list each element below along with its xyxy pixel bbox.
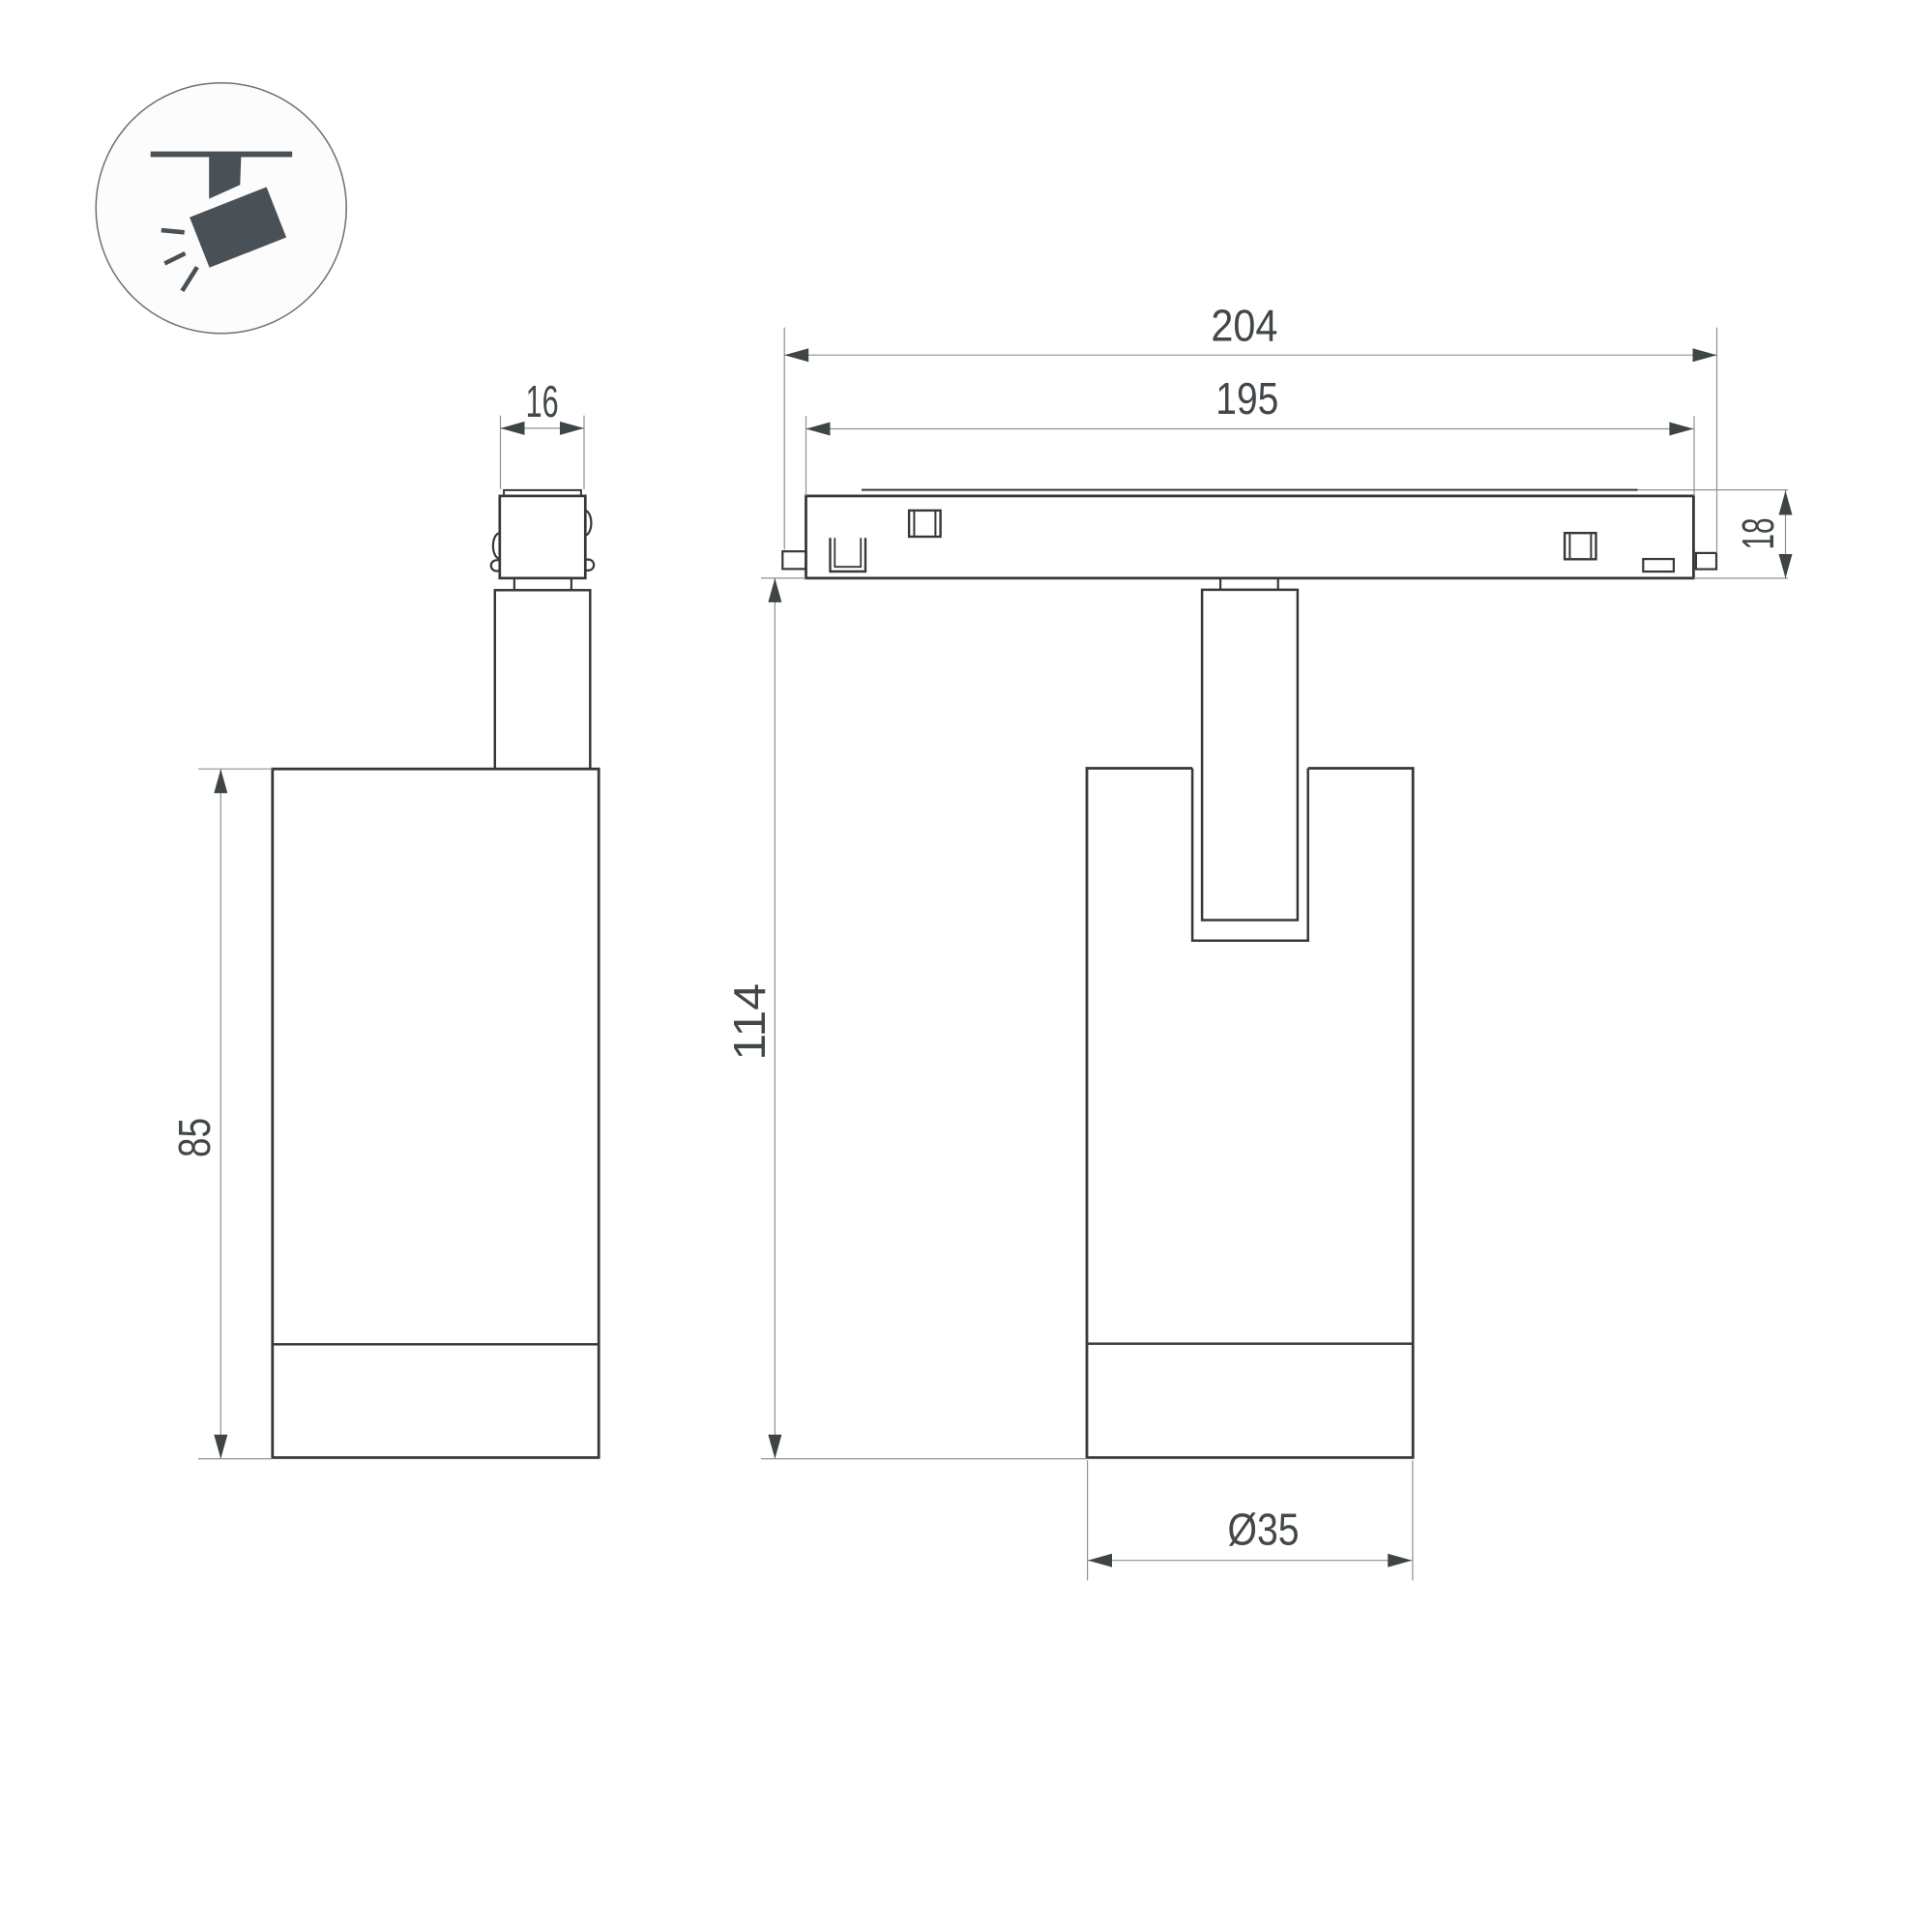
svg-text:16: 16 [526, 376, 559, 426]
svg-text:85: 85 [169, 1118, 220, 1157]
svg-text:114: 114 [724, 983, 775, 1061]
svg-text:195: 195 [1215, 373, 1278, 424]
svg-text:Ø35: Ø35 [1228, 1504, 1300, 1554]
svg-text:204: 204 [1211, 300, 1277, 350]
svg-text:18: 18 [1733, 518, 1783, 550]
